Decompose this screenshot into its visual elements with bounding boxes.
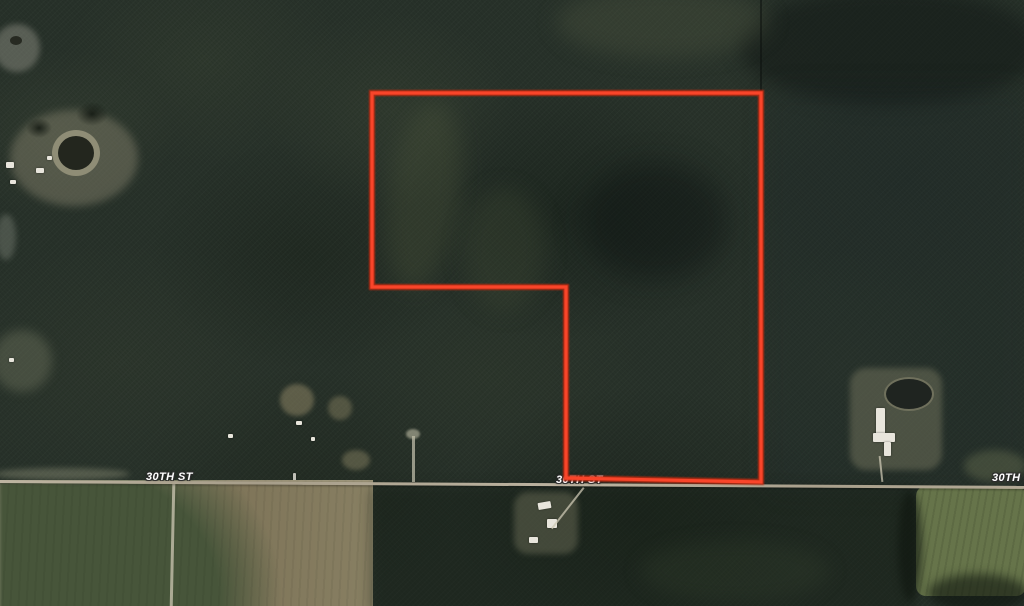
building-roof [296,421,302,425]
building-roof [311,437,315,441]
building-roof [47,156,52,160]
small-dark-pond-top-left [10,36,22,45]
south-woods-light-mottle [640,540,830,602]
building-roof [36,168,44,173]
dark-canopy-patch-parcel [582,162,728,280]
light-canopy-swath-2 [462,188,546,312]
building-roof [228,434,233,438]
farm-fields-bottom-left [0,480,373,606]
grass-verge-left [0,468,130,480]
road-label-30th-st-left: 30TH ST [146,471,193,483]
building-roof [6,162,14,168]
parcel-driveway-pad [406,429,420,439]
treeline-seam [760,0,762,94]
clearing-near-road-2 [328,396,352,420]
tree-clump [26,118,52,138]
road-label-30th-st-middle: 30TH ST [556,474,603,486]
building-roof [884,442,891,456]
clearing-near-road-1 [280,384,314,416]
tree-border-left-of-field [898,490,922,602]
road-label-30th-st-right: 30TH ST [992,472,1024,484]
building-roof [876,408,885,436]
parcel-driveway [412,436,415,482]
building-roof [9,358,14,362]
south-woods [370,486,915,606]
right-pond [884,377,934,411]
building-roof [873,433,895,442]
building-roof [10,180,16,184]
pond-dark-water [58,136,94,170]
clearing-near-road-3 [342,450,370,470]
tree-clump [76,102,108,126]
tree-border-below-field [928,574,1024,606]
satellite-map-view[interactable]: 30TH ST 30TH ST 30TH ST [0,0,1024,606]
building-roof [529,537,538,543]
